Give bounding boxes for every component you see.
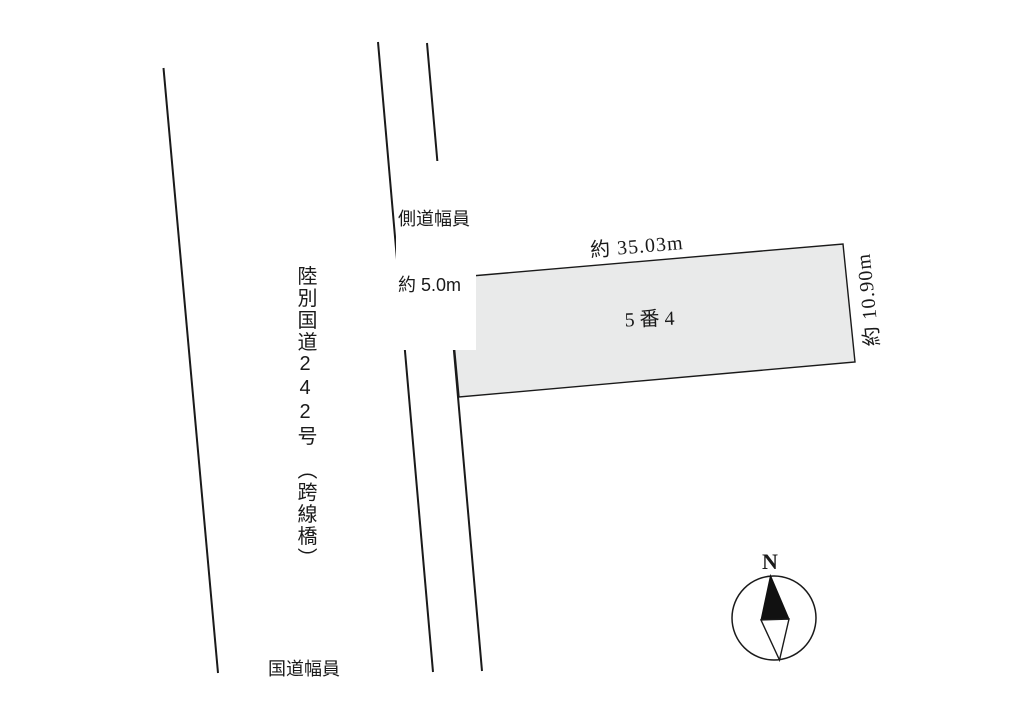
national-width-line1: 国道幅員 [268, 658, 341, 681]
road-name-pre: 陸別国道 [294, 265, 316, 353]
parcel-number-label: 5番4 [624, 302, 680, 333]
compass [732, 576, 816, 661]
national-road-name-label: 陸別国道242号 （跨線橋） [269, 235, 341, 569]
compass-needle-north-icon [761, 576, 789, 621]
side-road-left-line [378, 42, 433, 672]
side-road-width-line1: 側道幅員 [398, 208, 470, 230]
road-name-post: 号 （跨線橋） [294, 425, 316, 569]
site-plan-canvas: 側道幅員 約 5.0m 陸別国道242号 （跨線橋） 国道幅員 約 23.5m … [0, 0, 1024, 723]
road-name-number: 242 [294, 353, 316, 425]
compass-north-label: N [762, 549, 778, 575]
national-road-line [164, 68, 219, 673]
national-road-width-label: 国道幅員 約 23.5m [268, 612, 341, 723]
side-road-width-label: 側道幅員 約 5.0m [396, 161, 476, 350]
site-plan-drawing [0, 0, 1024, 723]
side-road-width-line2: 約 5.0m [398, 274, 470, 296]
compass-needle-south-icon [761, 619, 789, 660]
